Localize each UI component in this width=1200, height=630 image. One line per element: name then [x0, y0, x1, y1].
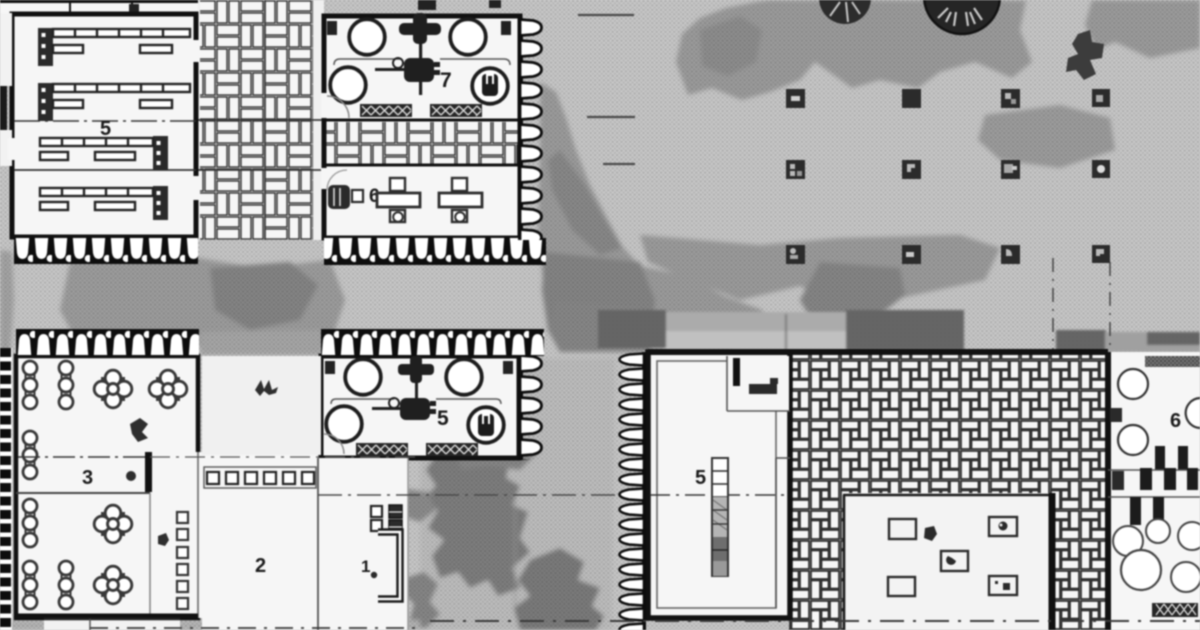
svg-text:6: 6 [1170, 410, 1181, 432]
svg-text:2: 2 [255, 555, 266, 577]
svg-text:3: 3 [82, 467, 93, 489]
svg-text:1: 1 [361, 557, 370, 576]
svg-text:5: 5 [100, 118, 111, 140]
svg-text:7: 7 [440, 69, 452, 92]
svg-text:5: 5 [695, 467, 706, 489]
svg-text:5: 5 [437, 407, 449, 430]
